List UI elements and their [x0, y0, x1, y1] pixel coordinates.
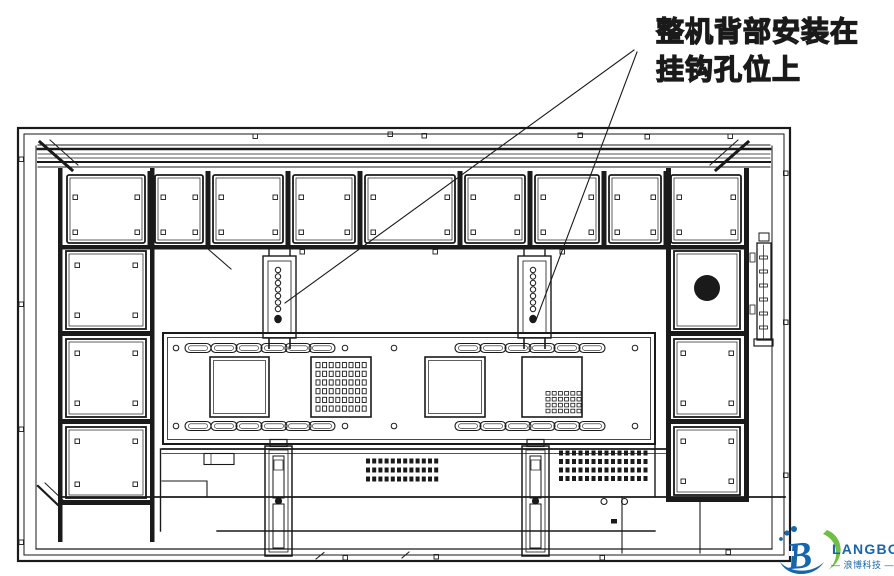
screw-hole: [133, 313, 138, 318]
round-hole: [173, 423, 179, 429]
vent-slot-inner: [459, 424, 478, 429]
screw-hole: [729, 401, 734, 406]
screw-hole: [471, 195, 476, 200]
column-cross-rail: [666, 331, 749, 336]
grille-hole: [558, 397, 562, 401]
grille-hole: [577, 409, 581, 413]
screw-hole: [681, 401, 686, 406]
vent-hole: [566, 468, 570, 473]
mount-hole: [601, 499, 607, 505]
cable-hole: [694, 275, 720, 301]
vent-hole: [416, 459, 420, 464]
hook-hole-filled: [529, 315, 537, 324]
grille-hole: [571, 409, 575, 413]
vent-hole: [644, 476, 648, 481]
vent-hole: [598, 459, 602, 464]
screw-hole: [541, 195, 546, 200]
stand-rail-slot: [530, 456, 541, 498]
vent-slot-inner: [558, 424, 577, 429]
logo-white-dot: [789, 551, 794, 556]
hook-hole: [275, 287, 280, 292]
grille-hole: [362, 406, 366, 411]
grille-hole: [349, 397, 353, 402]
vent-hole: [397, 477, 401, 482]
vent-hole: [618, 468, 622, 473]
vent-hole: [416, 468, 420, 473]
vent-hole: [624, 451, 628, 456]
grille-hole: [362, 380, 366, 385]
screw-hole: [135, 230, 140, 235]
round-hole: [632, 345, 638, 351]
vent-hole: [605, 459, 609, 464]
screw-hole: [135, 195, 140, 200]
grille-hole: [571, 403, 575, 407]
grille-hole: [336, 363, 340, 368]
vent-slot-inner: [509, 424, 528, 429]
panel-rear-drawing: 整机背部安装在 挂钩孔位上 B LANGBO — 浪博科技 —: [0, 0, 894, 576]
vent-slot: [529, 422, 555, 431]
vent-hole: [592, 451, 596, 456]
vent-hole: [592, 459, 596, 464]
grille-hole: [577, 403, 581, 407]
screw-hole: [273, 195, 278, 200]
vent-hole: [644, 468, 648, 473]
grille-hole: [329, 371, 333, 376]
top-panel: [609, 175, 661, 243]
grille-hole: [558, 409, 562, 413]
vent-slot: [236, 422, 262, 431]
vent-hole: [428, 468, 432, 473]
vent-hole: [566, 476, 570, 481]
hook-hole: [530, 287, 535, 292]
screw-hole: [19, 427, 24, 432]
callout-text: 整机背部安装在 挂钩孔位上: [656, 16, 859, 85]
stand-rail-slot: [273, 504, 284, 548]
top-panel-inner: [158, 178, 200, 240]
grille-hole: [316, 380, 320, 385]
column-cross-rail: [58, 500, 154, 505]
vent-hole: [624, 468, 628, 473]
leader-line-right-hook: [536, 52, 637, 320]
vent-hole: [366, 459, 370, 464]
vent-slot-inner: [240, 346, 259, 351]
screw-hole: [73, 230, 78, 235]
logo-subtitle-text: — 浪博科技 —: [831, 559, 894, 570]
vent-hole: [579, 476, 583, 481]
screw-hole: [651, 230, 656, 235]
vent-slot: [554, 344, 580, 353]
vent-hole: [409, 459, 413, 464]
vent-slot-inner: [215, 424, 234, 429]
grille-hole: [349, 406, 353, 411]
screw-hole: [133, 263, 138, 268]
screw-hole: [651, 195, 656, 200]
screw-hole: [681, 351, 686, 356]
grille-hole: [342, 406, 346, 411]
technical-drawing-page: 整机背部安装在 挂钩孔位上 B LANGBO — 浪博科技 —: [0, 0, 894, 576]
vent-hole: [559, 459, 563, 464]
grille-hole: [336, 371, 340, 376]
hook-hole: [530, 300, 535, 305]
grille-hole: [546, 409, 550, 413]
vent-hole: [559, 468, 563, 473]
vent-hole: [428, 477, 432, 482]
top-mounting-rail: [38, 140, 770, 170]
grille-hole: [565, 392, 569, 396]
vent-hole: [572, 451, 576, 456]
screw-hole: [219, 195, 224, 200]
vent-hole: [637, 468, 641, 473]
grille-hole: [552, 397, 556, 401]
vent-hole: [624, 459, 628, 464]
grille-hole: [349, 389, 353, 394]
vent-slot: [285, 422, 311, 431]
panel-divider: [458, 171, 463, 247]
vent-slot-inner: [189, 424, 208, 429]
logo-dot: [779, 537, 783, 541]
screw-hole: [600, 556, 605, 561]
grille-hole: [571, 397, 575, 401]
grille-hole: [356, 363, 360, 368]
vent-hole: [592, 476, 596, 481]
vent-hole: [403, 459, 407, 464]
vent-hole: [572, 476, 576, 481]
vent-slot-inner: [289, 424, 308, 429]
screw-hole: [681, 479, 686, 484]
hook-hole: [275, 267, 280, 272]
grille-hole: [558, 403, 562, 407]
grille-hole: [323, 406, 327, 411]
top-panel-inner: [468, 178, 522, 240]
grille-hole: [323, 371, 327, 376]
vent-slot: [455, 422, 481, 431]
vent-slot: [261, 344, 287, 353]
screw-hole: [681, 439, 686, 444]
langbo-logo: B LANGBO — 浪博科技 —: [779, 526, 894, 576]
left-panel: [66, 427, 146, 498]
vent-slot-inner: [189, 346, 208, 351]
vent-slot-inner: [583, 346, 602, 351]
hook-hole: [530, 274, 535, 279]
screw-hole: [345, 230, 350, 235]
round-hole: [342, 345, 348, 351]
grille-hole: [316, 371, 320, 376]
screw-hole: [219, 230, 224, 235]
vent-hole: [592, 468, 596, 473]
screw-hole: [161, 195, 166, 200]
bar-cutout-partial-grille: [522, 357, 582, 417]
grille-hole: [316, 406, 320, 411]
vent-hole: [585, 468, 589, 473]
vent-hole: [409, 468, 413, 473]
bar-cutout-plain: [425, 357, 485, 417]
column-rail: [150, 168, 155, 542]
top-panel: [365, 175, 455, 243]
screw-hole: [729, 479, 734, 484]
vent-hole: [644, 451, 648, 456]
screw-holes: [19, 132, 788, 560]
screw-hole: [726, 550, 731, 555]
vent-slot-inner: [289, 346, 308, 351]
vent-slot: [261, 422, 287, 431]
screw-hole: [433, 250, 438, 255]
left-panel-inner: [69, 254, 143, 326]
top-panel-inner: [70, 178, 142, 240]
grille-hole: [342, 371, 346, 376]
panel-divider: [358, 171, 363, 247]
grille-hole: [336, 406, 340, 411]
vent-hole: [372, 468, 376, 473]
grille-hole: [356, 389, 360, 394]
vent-slot-inner: [265, 424, 284, 429]
vent-slot: [185, 344, 211, 353]
grille-hole: [552, 392, 556, 396]
grille-hole: [342, 380, 346, 385]
vent-slot-inner: [313, 424, 332, 429]
screw-hole: [161, 230, 166, 235]
screw-hole: [300, 250, 305, 255]
vent-slot: [309, 422, 335, 431]
grille-hole: [342, 397, 346, 402]
hook-hole: [275, 274, 280, 279]
screw-hole: [193, 230, 198, 235]
vent-slot: [505, 344, 531, 353]
round-hole: [391, 423, 397, 429]
vent-hole: [566, 451, 570, 456]
vent-hole: [422, 468, 426, 473]
vent-hole: [378, 477, 382, 482]
screw-hole: [471, 230, 476, 235]
vent-hole: [598, 468, 602, 473]
vent-hole: [618, 476, 622, 481]
column-cross-rail: [58, 331, 154, 336]
vent-hole: [385, 477, 389, 482]
screw-hole: [677, 230, 682, 235]
hook-hole: [275, 280, 280, 285]
vent-hole: [559, 476, 563, 481]
vent-hole: [428, 459, 432, 464]
round-hole: [632, 423, 638, 429]
right-panel-column: [666, 168, 749, 502]
screw-hole: [445, 230, 450, 235]
vent-hole: [416, 477, 420, 482]
vent-hole: [385, 468, 389, 473]
vent-slot-inner: [215, 346, 234, 351]
vent-hole: [598, 451, 602, 456]
vent-hole: [611, 451, 615, 456]
right-panel: [674, 427, 740, 495]
stand-rail-slot: [273, 456, 284, 498]
logo-dot: [791, 526, 797, 532]
vent-hole: [372, 459, 376, 464]
screw-hole: [75, 482, 80, 487]
left-panel-inner: [69, 430, 143, 495]
vent-hole: [372, 477, 376, 482]
column-rail: [58, 168, 63, 542]
vent-slot-inner: [240, 424, 259, 429]
screw-hole: [133, 482, 138, 487]
vent-slot-inner: [533, 424, 552, 429]
round-hole: [342, 423, 348, 429]
vent-slot: [236, 344, 262, 353]
top-panel-inner: [296, 178, 352, 240]
vent-hole: [644, 459, 648, 464]
hook-hole: [530, 280, 535, 285]
left-panel-column: [58, 168, 155, 542]
stand-rail-hole: [275, 497, 282, 504]
vent-hole: [385, 459, 389, 464]
vent-hole: [422, 459, 426, 464]
grille-hole: [316, 397, 320, 402]
grille-hole: [552, 403, 556, 407]
screw-hole: [343, 556, 348, 561]
stand-rail-hole: [532, 497, 539, 504]
callout-leader-lines: [208, 50, 637, 320]
bar-cutout-plain: [210, 357, 269, 417]
vent-slot: [455, 344, 481, 353]
screw-hole: [445, 195, 450, 200]
vent-slot-inner: [533, 346, 552, 351]
vent-hole: [391, 477, 395, 482]
screw-hole: [729, 439, 734, 444]
hook-hole: [275, 293, 280, 298]
grille-hole: [323, 389, 327, 394]
vent-hole: [637, 459, 641, 464]
grille-hole: [362, 389, 366, 394]
screw-hole: [731, 195, 736, 200]
grille-hole: [565, 403, 569, 407]
grille-hole: [571, 392, 575, 396]
round-hole: [391, 345, 397, 351]
vent-hole: [598, 476, 602, 481]
grille-hole: [336, 380, 340, 385]
screw-hole: [371, 195, 376, 200]
screw-hole: [133, 351, 138, 356]
vent-hole: [378, 459, 382, 464]
vent-hole: [397, 468, 401, 473]
screw-hole: [729, 351, 734, 356]
right-edge-rail: [750, 233, 773, 346]
screw-hole: [515, 195, 520, 200]
corner-hatch: [38, 486, 58, 505]
vent-hole: [637, 451, 641, 456]
vent-slot: [579, 422, 605, 431]
top-panel-inner: [538, 178, 596, 240]
top-panel-inner: [674, 178, 738, 240]
screw-hole: [728, 134, 733, 139]
screw-hole: [73, 195, 78, 200]
vent-slot-inner: [484, 424, 503, 429]
vent-hole: [611, 459, 615, 464]
grille-hole: [552, 409, 556, 413]
screw-hole: [75, 401, 80, 406]
vent-hole: [579, 459, 583, 464]
grille-hole: [329, 380, 333, 385]
hook-hole: [530, 267, 535, 272]
grille-hole: [329, 363, 333, 368]
vent-slot-inner: [558, 346, 577, 351]
grille-hole: [565, 397, 569, 401]
screw-hole: [193, 195, 198, 200]
vent-slot-inner: [265, 346, 284, 351]
grille-hole: [362, 397, 366, 402]
screw-hole: [253, 134, 258, 139]
vent-hole: [624, 476, 628, 481]
vent-slot: [211, 422, 237, 431]
vent-hole: [434, 468, 438, 473]
bottom-step: [204, 454, 234, 465]
grille-hole: [356, 371, 360, 376]
hook-hole: [275, 300, 280, 305]
middle-mount-bar: [163, 333, 655, 444]
grille-hole: [577, 397, 581, 401]
leader-line-left-hook: [285, 50, 634, 303]
hook-hole-filled: [274, 315, 282, 324]
grille-hole: [329, 397, 333, 402]
top-panel: [465, 175, 525, 243]
grille-hole: [316, 363, 320, 368]
vent-slot: [285, 344, 311, 353]
vent-slot: [480, 422, 506, 431]
screw-hole: [75, 263, 80, 268]
callout-line-1: 整机背部安装在: [656, 16, 859, 47]
grille-hole: [546, 397, 550, 401]
grille-hole: [323, 363, 327, 368]
vent-hole: [618, 451, 622, 456]
screw-hole: [345, 195, 350, 200]
panel-row-bottom-rail: [58, 245, 749, 250]
vent-slot-inner: [484, 346, 503, 351]
stand-rail-detail: [274, 460, 283, 470]
grille-hole: [323, 397, 327, 402]
grille-hole: [362, 363, 366, 368]
top-panel: [155, 175, 203, 243]
vent-slot: [579, 344, 605, 353]
screw-hole: [645, 135, 650, 140]
stand-rail-detail: [531, 460, 540, 470]
hook-hole: [530, 306, 535, 311]
panel-divider: [206, 171, 211, 247]
grille-hole: [342, 389, 346, 394]
grille-hole: [336, 389, 340, 394]
top-panel-inner: [216, 178, 280, 240]
vent-hole: [611, 468, 615, 473]
logo-dot: [784, 530, 789, 535]
vent-hole: [611, 476, 615, 481]
vent-hole: [434, 459, 438, 464]
grille-hole: [336, 397, 340, 402]
vent-slot: [529, 344, 555, 353]
screw-hole: [677, 195, 682, 200]
vent-hole: [391, 459, 395, 464]
top-panel-row: [58, 171, 749, 250]
screw-hole: [299, 230, 304, 235]
vent-hole: [585, 476, 589, 481]
vent-slot: [480, 344, 506, 353]
top-panel: [293, 175, 355, 243]
vent-hole: [566, 459, 570, 464]
vent-hole: [618, 459, 622, 464]
screw-hole: [273, 230, 278, 235]
vent-hole: [605, 451, 609, 456]
vent-hole: [585, 459, 589, 464]
vent-hole: [403, 468, 407, 473]
vent-hole: [422, 477, 426, 482]
vent-hole: [631, 459, 635, 464]
vent-slot: [185, 422, 211, 431]
screw-hole: [731, 230, 736, 235]
left-panel-inner: [69, 342, 143, 414]
